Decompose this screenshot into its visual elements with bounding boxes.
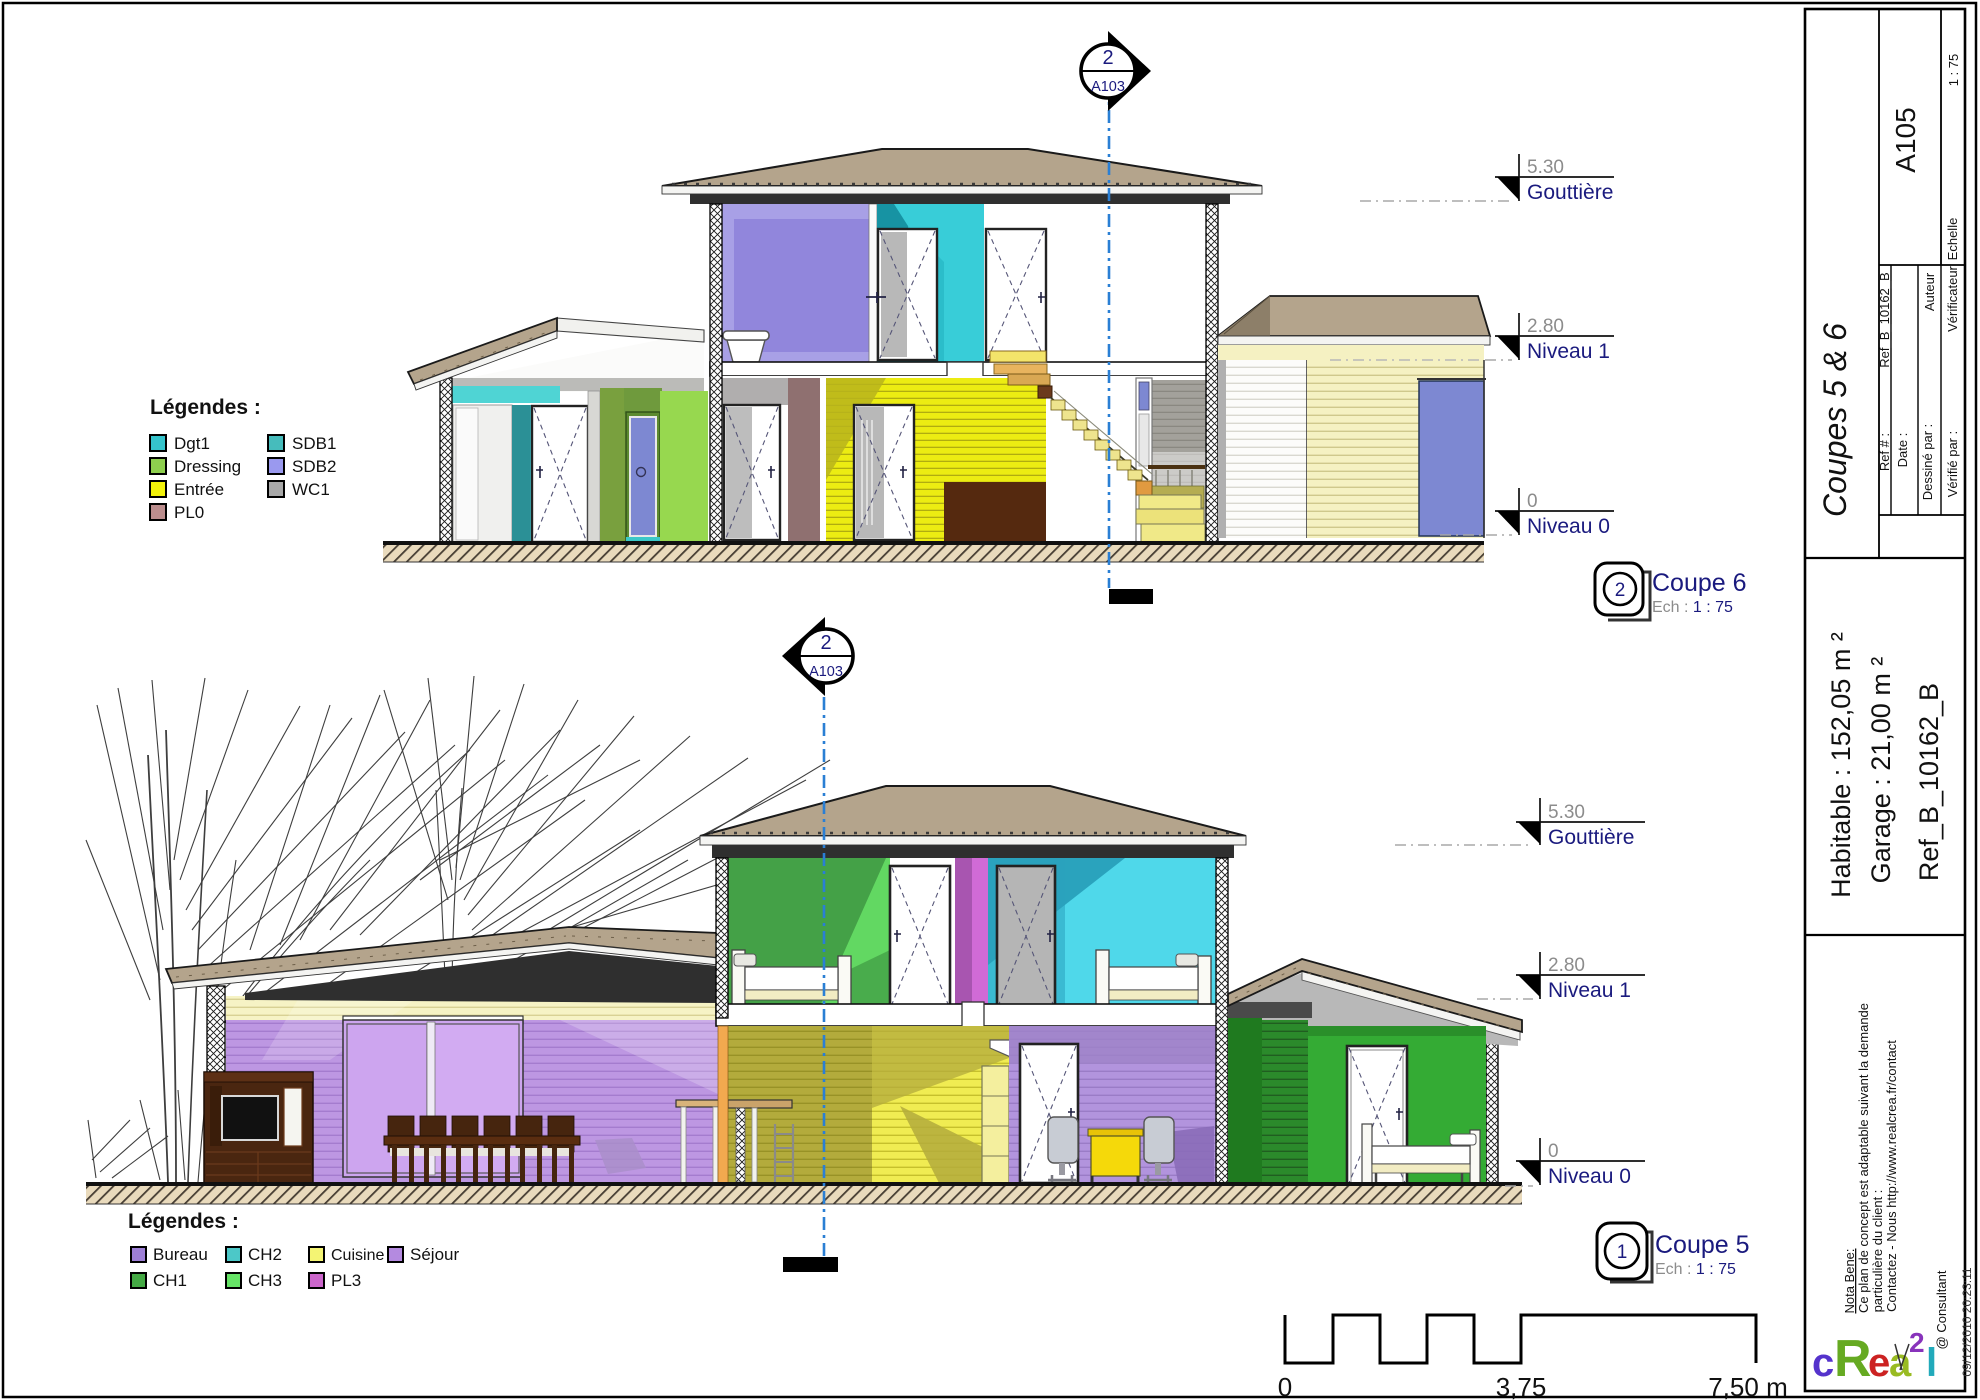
svg-text:Légendes :: Légendes : xyxy=(150,396,261,419)
svg-text:2: 2 xyxy=(1909,1327,1925,1358)
svg-text:Ref # :: Ref # : xyxy=(1877,433,1892,471)
svg-text:Gouttière: Gouttière xyxy=(1527,181,1613,204)
svg-text:7,50 m: 7,50 m xyxy=(1708,1372,1788,1400)
svg-text:1: 1 xyxy=(1617,1242,1628,1263)
svg-text:CH3: CH3 xyxy=(248,1271,282,1290)
svg-text:Coupe 6: Coupe 6 xyxy=(1652,569,1747,597)
svg-text:09/12/2010 20:23:11: 09/12/2010 20:23:11 xyxy=(1960,1267,1974,1377)
svg-text:A103: A103 xyxy=(809,664,843,680)
svg-text:Ech : 1 : 75: Ech : 1 : 75 xyxy=(1652,599,1733,616)
svg-text:1 : 75: 1 : 75 xyxy=(1946,54,1961,87)
svg-text:l: l xyxy=(1926,1341,1937,1385)
svg-text:Bureau: Bureau xyxy=(153,1245,208,1264)
svg-text:0: 0 xyxy=(1278,1372,1292,1400)
svg-text:c: c xyxy=(1812,1341,1834,1385)
svg-text:Garage : 21,00 m ²: Garage : 21,00 m ² xyxy=(1866,657,1896,884)
svg-text:Dessiné par :: Dessiné par : xyxy=(1920,424,1935,501)
svg-text:Vérificateur: Vérificateur xyxy=(1945,265,1960,331)
svg-text:CH1: CH1 xyxy=(153,1271,187,1290)
svg-text:Niveau 1: Niveau 1 xyxy=(1548,979,1631,1002)
svg-text:2: 2 xyxy=(820,632,831,654)
svg-text:Dgt1: Dgt1 xyxy=(174,434,210,453)
svg-text:Séjour: Séjour xyxy=(410,1245,459,1264)
svg-text:Contactez - Nous http://www.re: Contactez - Nous http://www.realcrea.fr/… xyxy=(1884,1040,1899,1312)
svg-text:Ech : 1 : 75: Ech : 1 : 75 xyxy=(1655,1261,1736,1278)
svg-text:Coupe 5: Coupe 5 xyxy=(1655,1231,1750,1259)
svg-text:PL0: PL0 xyxy=(174,503,204,522)
svg-text:Gouttière: Gouttière xyxy=(1548,826,1634,849)
svg-text:0: 0 xyxy=(1548,1141,1559,1162)
svg-text:A103: A103 xyxy=(1091,79,1125,95)
svg-text:particulière du client :: particulière du client : xyxy=(1870,1190,1885,1313)
svg-text:Echelle: Echelle xyxy=(1945,218,1960,261)
svg-text:Ref_B_10162_B: Ref_B_10162_B xyxy=(1877,272,1892,367)
svg-text:Nota Bene:: Nota Bene: xyxy=(1842,1248,1857,1313)
svg-text:@ Consultant: @ Consultant xyxy=(1934,1270,1949,1349)
svg-text:Cuisine: Cuisine xyxy=(331,1247,384,1264)
svg-text:5.30: 5.30 xyxy=(1548,802,1585,823)
svg-text:Niveau 1: Niveau 1 xyxy=(1527,340,1610,363)
svg-text:R: R xyxy=(1834,1330,1872,1388)
svg-text:Légendes :: Légendes : xyxy=(128,1210,239,1233)
svg-text:3,75: 3,75 xyxy=(1496,1372,1547,1400)
svg-text:Auteur: Auteur xyxy=(1922,272,1937,311)
svg-text:Vérifié par :: Vérifié par : xyxy=(1945,431,1960,497)
svg-text:Ref_B_10162_B: Ref_B_10162_B xyxy=(1914,683,1944,881)
svg-text:2: 2 xyxy=(1102,47,1113,69)
svg-text:5.30: 5.30 xyxy=(1527,157,1564,178)
svg-text:Dressing: Dressing xyxy=(174,457,241,476)
svg-text:Niveau 0: Niveau 0 xyxy=(1548,1165,1631,1188)
svg-text:0: 0 xyxy=(1527,491,1538,512)
svg-text:SDB2: SDB2 xyxy=(292,457,336,476)
svg-text:A105: A105 xyxy=(1890,107,1921,172)
svg-text:2.80: 2.80 xyxy=(1548,955,1585,976)
svg-text:CH2: CH2 xyxy=(248,1245,282,1264)
svg-text:SDB1: SDB1 xyxy=(292,434,336,453)
svg-text:WC1: WC1 xyxy=(292,480,330,499)
svg-text:Niveau 0: Niveau 0 xyxy=(1527,515,1610,538)
svg-text:Ce plan de concept est adaptab: Ce plan de concept est adaptable suivant… xyxy=(1856,1003,1871,1313)
svg-text:Date :: Date : xyxy=(1895,433,1910,468)
svg-text:Habitable : 152,05 m ²: Habitable : 152,05 m ² xyxy=(1826,632,1856,898)
svg-text:e: e xyxy=(1868,1341,1890,1385)
svg-text:Coupes 5 & 6: Coupes 5 & 6 xyxy=(1817,323,1853,517)
svg-text:2: 2 xyxy=(1615,580,1626,601)
svg-text:2.80: 2.80 xyxy=(1527,316,1564,337)
svg-text:PL3: PL3 xyxy=(331,1271,361,1290)
svg-text:Entrée: Entrée xyxy=(174,480,224,499)
